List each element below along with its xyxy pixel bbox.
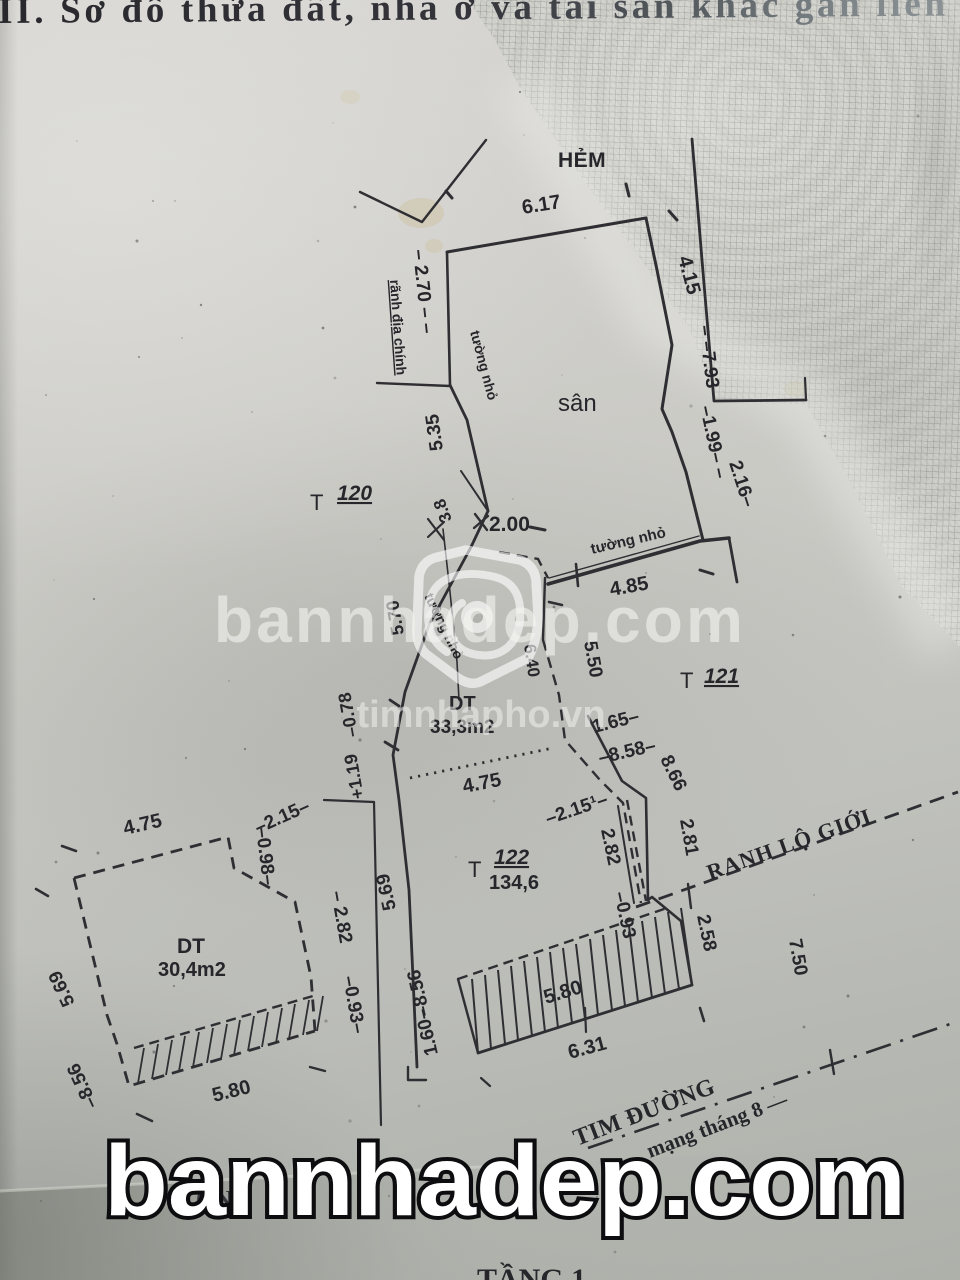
svg-text:5.69: 5.69: [45, 967, 80, 1009]
svg-text:T: T: [680, 668, 693, 693]
svg-text:bannhadep.com: bannhadep.com: [104, 1125, 906, 1237]
svg-text:DT: DT: [177, 935, 205, 958]
svg-text:121: 121: [704, 665, 739, 688]
svg-text:–0.93–: –0.93–: [338, 974, 369, 1035]
svg-text:– 2.70 – –: – 2.70 – –: [408, 248, 438, 334]
svg-text:–8.56: –8.56: [63, 1060, 102, 1112]
svg-text:–0.98–: –0.98–: [251, 826, 279, 886]
svg-text:4.75: 4.75: [461, 769, 503, 798]
svg-text:T: T: [310, 490, 323, 515]
svg-text:–1.99– –: –1.99– –: [695, 404, 731, 481]
svg-text:–2.15¹–: –2.15¹–: [543, 789, 611, 830]
svg-text:5.80: 5.80: [541, 976, 585, 1008]
svg-text:–8.58–: –8.58–: [596, 735, 657, 769]
svg-text:30,4m2: 30,4m2: [158, 959, 226, 981]
svg-text:HẺM: HẺM: [558, 149, 606, 172]
svg-text:7.50: 7.50: [784, 937, 811, 977]
svg-text:2.58: 2.58: [692, 913, 720, 954]
svg-text:timnhapho.vn: timnhapho.vn: [356, 694, 605, 736]
svg-text:tường nhỏ: tường nhỏ: [467, 329, 501, 402]
svg-text:122: 122: [494, 846, 529, 869]
svg-text:2.82: 2.82: [596, 827, 624, 868]
svg-text:2.16–: 2.16–: [724, 458, 759, 510]
svg-text:– 2.82: – 2.82: [326, 889, 356, 945]
svg-text:II. Sơ đồ thừa đất, nhà ở và t: II. Sơ đồ thừa đất, nhà ở và tài sản khá…: [0, 0, 960, 32]
svg-text:T: T: [468, 857, 481, 882]
svg-text:bannhadep.com: bannhadep.com: [214, 584, 746, 656]
svg-text:6.31: 6.31: [566, 1033, 609, 1064]
svg-text:sân: sân: [558, 390, 597, 417]
svg-text:5.80: 5.80: [210, 1076, 253, 1107]
svg-text:2.81: 2.81: [675, 817, 702, 857]
svg-text:–0.93: –0.93: [609, 890, 639, 941]
svg-text:134,6: 134,6: [489, 872, 539, 894]
svg-text:rãnh địa chính: rãnh địa chính: [387, 279, 410, 376]
svg-text:4.15: 4.15: [673, 254, 704, 297]
svg-text:TẦNG 1: TẦNG 1: [477, 1262, 586, 1280]
svg-text:RANH LỘ GIỚI: RANH LỘ GIỚI: [703, 803, 875, 884]
svg-text:8.66: 8.66: [656, 752, 691, 794]
svg-text:5.35: 5.35: [422, 412, 448, 452]
svg-text:2.00: 2.00: [489, 513, 530, 536]
svg-text:+1.19: +1.19: [340, 752, 368, 800]
svg-text:4.75: 4.75: [121, 810, 164, 840]
svg-text:3.8: 3.8: [430, 496, 456, 525]
svg-text:120: 120: [337, 482, 372, 505]
svg-text:6.17: 6.17: [520, 191, 562, 219]
